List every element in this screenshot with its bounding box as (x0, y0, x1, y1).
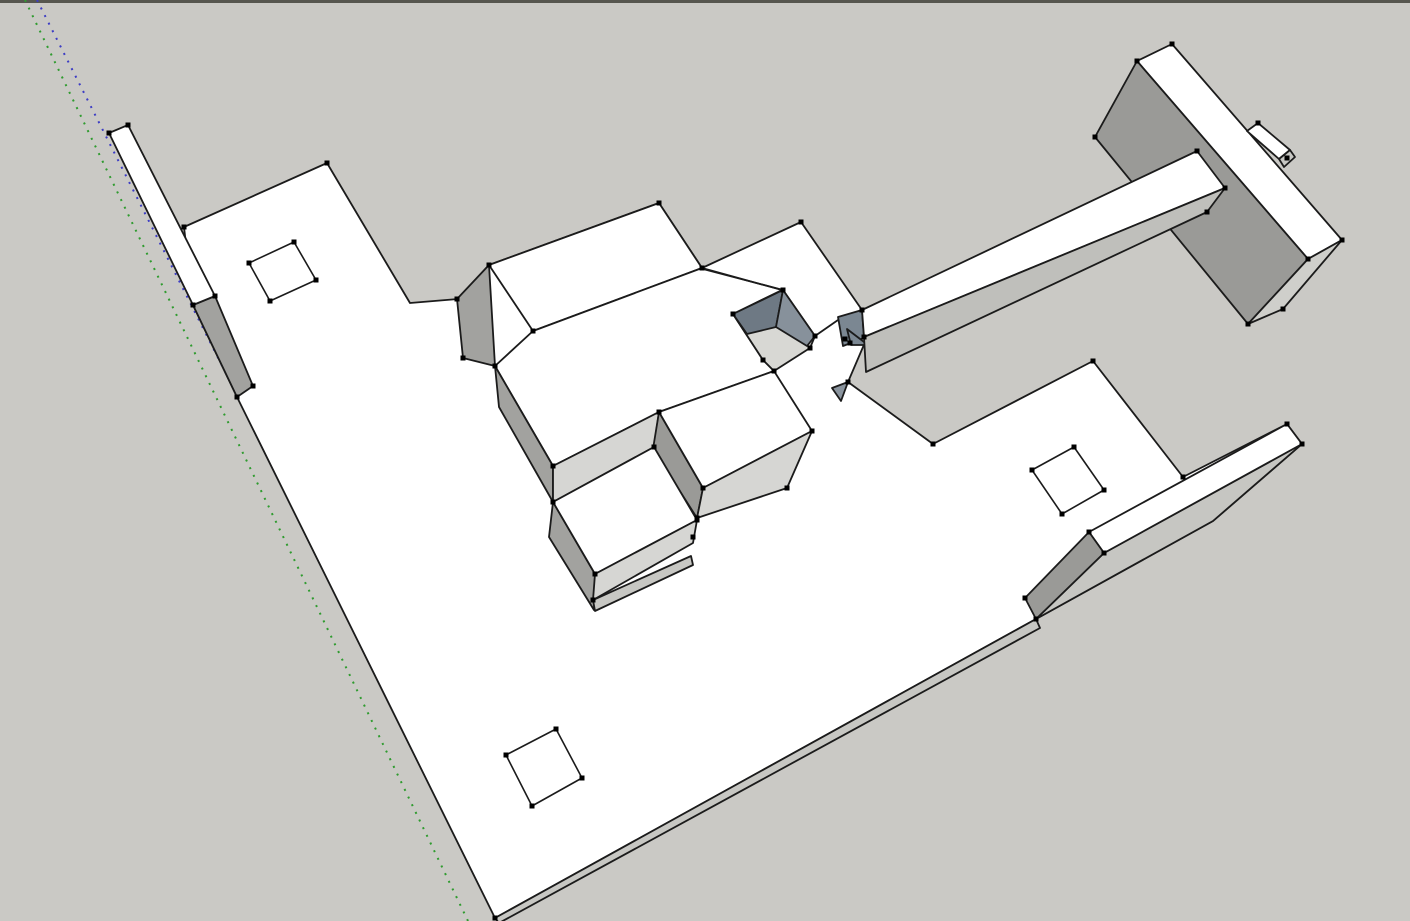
vertex-endpoint-dot (235, 395, 240, 400)
vertex-endpoint-dot (781, 288, 786, 293)
vertex-endpoint-dot (1285, 156, 1290, 161)
vertex-endpoint-dot (1340, 238, 1345, 243)
vertex-endpoint-dot (695, 516, 700, 521)
vertex-endpoint-dot (848, 341, 853, 346)
vertex-endpoint-dot (1034, 617, 1039, 622)
vertex-endpoint-dot (1093, 135, 1098, 140)
vertex-endpoint-dot (1205, 210, 1210, 215)
vertex-endpoint-dot (862, 335, 867, 340)
vertex-endpoint-dot (554, 727, 559, 732)
vertex-endpoint-dot (487, 263, 492, 268)
vertex-endpoint-dot (1102, 551, 1107, 556)
vertex-endpoint-dot (325, 161, 330, 166)
vertex-endpoint-dot (652, 445, 657, 450)
modeling-viewport-3d[interactable] (0, 0, 1410, 921)
vertex-endpoint-dot (1223, 186, 1228, 191)
vertex-endpoint-dot (931, 442, 936, 447)
vertex-endpoint-dot (1102, 488, 1107, 493)
vertex-endpoint-dot (1285, 422, 1290, 427)
vertex-endpoint-dot (551, 500, 556, 505)
vertex-endpoint-dot (107, 131, 112, 136)
vertex-endpoint-dot (191, 303, 196, 308)
vertex-endpoint-dot (1246, 322, 1251, 327)
vertex-endpoint-dot (657, 410, 662, 415)
vertex-endpoint-dot (1060, 512, 1065, 517)
vertex-endpoint-dot (1087, 530, 1092, 535)
vertex-endpoint-dot (860, 308, 865, 313)
vertex-endpoint-dot (182, 225, 187, 230)
vertex-endpoint-dot (657, 201, 662, 206)
vertex-endpoint-dot (846, 380, 851, 385)
vertex-endpoint-dot (1023, 596, 1028, 601)
vertex-endpoint-dot (314, 278, 319, 283)
vertex-endpoint-dot (813, 334, 818, 339)
vertex-endpoint-dot (593, 572, 598, 577)
vertex-endpoint-dot (580, 776, 585, 781)
vertex-endpoint-dot (1072, 445, 1077, 450)
vertex-endpoint-dot (493, 916, 498, 921)
vertex-endpoint-dot (213, 294, 218, 299)
vertex-endpoint-dot (1181, 475, 1186, 480)
vertex-endpoint-dot (731, 312, 736, 317)
vertex-endpoint-dot (530, 804, 535, 809)
vertex-endpoint-dot (761, 358, 766, 363)
vertex-endpoint-dot (785, 486, 790, 491)
vertex-endpoint-dot (799, 220, 804, 225)
vertex-endpoint-dot (808, 346, 813, 351)
vertex-endpoint-dot (772, 369, 777, 374)
vertex-endpoint-dot (1195, 149, 1200, 154)
vertex-endpoint-dot (504, 753, 509, 758)
vertex-endpoint-dot (551, 464, 556, 469)
vertex-endpoint-dot (493, 364, 498, 369)
vertex-endpoint-dot (247, 261, 252, 266)
vertex-endpoint-dot (1306, 257, 1311, 262)
vertex-endpoint-dot (1030, 468, 1035, 473)
vertex-endpoint-dot (292, 240, 297, 245)
vertex-endpoint-dot (251, 384, 256, 389)
vertex-endpoint-dot (455, 297, 460, 302)
vertex-endpoint-dot (700, 266, 705, 271)
vertex-endpoint-dot (461, 356, 466, 361)
vertex-endpoint-dot (843, 337, 848, 342)
vertex-endpoint-dot (1135, 59, 1140, 64)
vertex-endpoint-dot (1300, 442, 1305, 447)
vertex-endpoint-dot (1170, 42, 1175, 47)
vertex-endpoint-dot (810, 429, 815, 434)
vertex-endpoint-dot (268, 299, 273, 304)
vertex-endpoint-dot (126, 123, 131, 128)
vertex-endpoint-dot (531, 329, 536, 334)
modeling-app-window (0, 0, 1410, 921)
viewport-top-border (0, 0, 1410, 3)
vertex-endpoint-dot (691, 535, 696, 540)
vertex-endpoint-dot (1256, 121, 1261, 126)
vertex-endpoint-dot (591, 598, 596, 603)
vertex-endpoint-dot (701, 486, 706, 491)
vertex-endpoint-dot (1091, 359, 1096, 364)
vertex-endpoint-dot (1281, 307, 1286, 312)
